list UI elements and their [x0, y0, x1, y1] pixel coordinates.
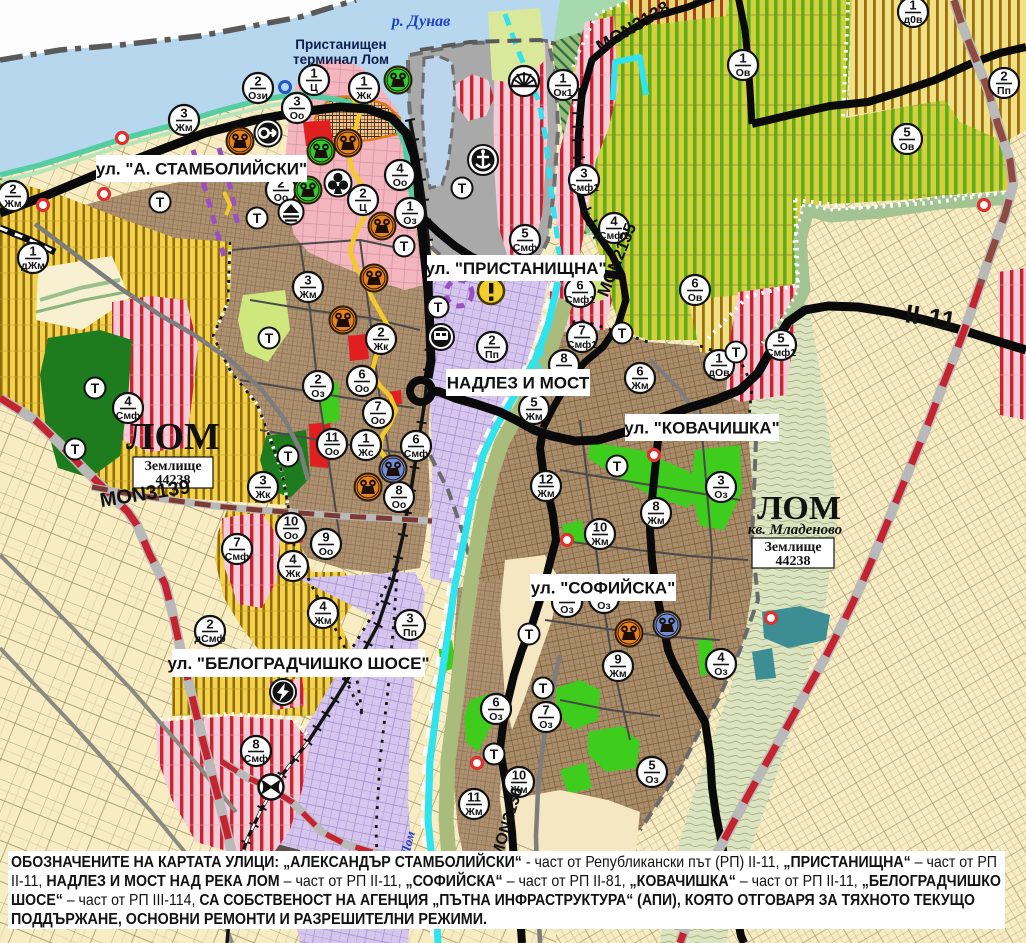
svg-text:Т: Т: [434, 299, 443, 315]
svg-text:Жм: Жм: [630, 380, 648, 392]
svg-text:Жм: Жм: [3, 198, 21, 210]
svg-text:2: 2: [1000, 69, 1007, 84]
svg-text:5: 5: [521, 226, 528, 241]
svg-text:р. Дунав: р. Дунав: [390, 13, 450, 30]
svg-text:1: 1: [362, 431, 369, 446]
svg-text:Смф1: Смф1: [766, 347, 796, 359]
svg-text:терминал Лом: терминал Лом: [293, 52, 389, 67]
svg-text:1: 1: [739, 51, 746, 66]
svg-text:Жм: Жм: [590, 536, 608, 548]
svg-text:Смф: Смф: [404, 448, 428, 460]
svg-text:Жк: Жк: [356, 90, 372, 102]
svg-text:10: 10: [512, 768, 526, 783]
svg-text:дОв: дОв: [708, 367, 730, 379]
svg-text:7: 7: [542, 703, 549, 718]
svg-text:3: 3: [180, 106, 187, 121]
svg-text:6: 6: [358, 367, 365, 382]
svg-text:6: 6: [492, 695, 499, 710]
svg-text:Оз: Оз: [560, 604, 573, 616]
svg-text:9: 9: [322, 530, 329, 545]
svg-text:1: 1: [29, 244, 36, 259]
svg-text:4: 4: [124, 394, 132, 409]
svg-text:ул. "КОВАЧИШКА": ул. "КОВАЧИШКА": [624, 419, 780, 438]
svg-text:5: 5: [648, 758, 655, 773]
svg-text:Т: Т: [156, 194, 165, 210]
svg-text:44238: 44238: [776, 554, 811, 569]
svg-text:Жм: Жм: [608, 668, 626, 680]
svg-text:Т: Т: [91, 380, 100, 396]
svg-text:Жк: Жк: [373, 341, 389, 353]
svg-text:11: 11: [467, 790, 481, 805]
svg-text:4: 4: [289, 552, 297, 567]
svg-text:Смф: Смф: [513, 242, 537, 254]
svg-text:2: 2: [206, 617, 213, 632]
svg-text:д0в: д0в: [904, 14, 924, 26]
svg-text:Оо: Оо: [393, 177, 408, 189]
svg-text:Оо: Оо: [371, 415, 386, 427]
svg-text:Т: Т: [284, 448, 293, 464]
svg-text:Ов: Ов: [688, 292, 703, 304]
svg-text:Оз: Оз: [539, 719, 552, 731]
svg-text:Оо: Оо: [392, 499, 407, 511]
svg-text:1: 1: [715, 351, 722, 366]
svg-text:2: 2: [488, 333, 495, 348]
svg-text:Землище: Землище: [144, 459, 201, 474]
svg-text:4: 4: [717, 650, 725, 665]
svg-text:1: 1: [909, 0, 916, 13]
svg-text:кв. Младеново: кв. Младеново: [748, 522, 842, 538]
svg-text:ЛОМ: ЛОМ: [126, 416, 220, 458]
svg-text:Ози: Ози: [248, 90, 268, 102]
svg-text:Т: Т: [525, 626, 534, 642]
svg-text:Оо: Оо: [319, 546, 334, 558]
svg-text:Ов: Ов: [736, 67, 751, 79]
svg-text:2: 2: [377, 325, 384, 340]
svg-text:8: 8: [395, 483, 402, 498]
svg-text:Оз: Оз: [489, 711, 502, 723]
svg-text:Т: Т: [253, 210, 262, 226]
svg-text:Жк: Жк: [285, 568, 301, 580]
svg-text:8: 8: [560, 351, 567, 366]
svg-text:Пп: Пп: [997, 85, 1011, 97]
svg-text:1: 1: [310, 66, 317, 81]
svg-text:Т: Т: [400, 238, 409, 254]
svg-text:3: 3: [717, 473, 724, 488]
svg-text:Смф1: Смф1: [569, 182, 599, 194]
svg-text:Оз: Оз: [714, 489, 727, 501]
svg-text:5: 5: [903, 125, 910, 140]
svg-text:3: 3: [580, 166, 587, 181]
svg-text:7: 7: [233, 535, 240, 550]
svg-text:ул. "БЕЛОГРАДЧИШКО ШОСЕ": ул. "БЕЛОГРАДЧИШКО ШОСЕ": [167, 654, 429, 673]
svg-text:Оз: Оз: [597, 600, 610, 612]
svg-text:6: 6: [691, 276, 698, 291]
svg-text:Т: Т: [71, 441, 80, 457]
svg-text:Ок1: Ок1: [553, 87, 572, 99]
svg-text:Оо: Оо: [325, 446, 340, 458]
svg-text:ОБОЗНАЧЕНИТЕ НА КАРТАТА УЛИЦИ:: ОБОЗНАЧЕНИТЕ НА КАРТАТА УЛИЦИ: „АЛЕКСАНД…: [11, 852, 997, 871]
svg-text:1: 1: [406, 199, 413, 214]
svg-text:4: 4: [396, 161, 404, 176]
svg-text:Жм: Жм: [524, 411, 542, 423]
svg-text:дСмф: дСмф: [194, 633, 225, 645]
svg-text:1: 1: [559, 71, 566, 86]
svg-text:Жм: Жм: [174, 122, 192, 134]
svg-text:12: 12: [539, 472, 553, 487]
svg-text:Жс: Жс: [357, 447, 373, 459]
svg-text:Т: Т: [732, 344, 741, 360]
svg-text:5: 5: [530, 395, 537, 410]
svg-text:6: 6: [636, 364, 643, 379]
svg-text:Т: Т: [265, 330, 274, 346]
svg-text:Пристанищен: Пристанищен: [295, 37, 386, 52]
svg-text:II-11, НАДЛЕЗ И МОСТ НАД РЕКА: II-11, НАДЛЕЗ И МОСТ НАД РЕКА ЛОМ – част…: [11, 871, 1001, 890]
svg-text:3: 3: [259, 473, 266, 488]
svg-text:2: 2: [9, 182, 16, 197]
svg-text:8: 8: [652, 499, 659, 514]
svg-text:Смф: Смф: [244, 753, 268, 765]
svg-text:ул. "ПРИСТАНИЩНА": ул. "ПРИСТАНИЩНА": [425, 259, 606, 278]
svg-text:Т: Т: [458, 180, 467, 196]
svg-text:9: 9: [614, 652, 621, 667]
svg-text:5: 5: [777, 331, 784, 346]
svg-text:Оо: Оо: [284, 530, 299, 542]
svg-text:дЖм: дЖм: [21, 260, 45, 272]
svg-text:Жм: Жм: [313, 615, 331, 627]
svg-text:ШОСЕ“ – част от РП III-114, СА: ШОСЕ“ – част от РП III-114, СА СОБСТВЕНО…: [11, 892, 975, 909]
svg-text:6: 6: [412, 432, 419, 447]
svg-text:Пп: Пп: [485, 349, 499, 361]
svg-text:2: 2: [254, 74, 261, 89]
svg-text:Ов: Ов: [900, 141, 915, 153]
svg-text:Т: Т: [613, 458, 622, 474]
svg-text:ул. "СОФИЙСКА": ул. "СОФИЙСКА": [531, 579, 676, 598]
svg-text:Жм: Жм: [646, 515, 664, 527]
svg-text:Смф: Смф: [225, 551, 249, 563]
svg-text:НАДЛЕЗ И МОСТ: НАДЛЕЗ И МОСТ: [447, 374, 590, 393]
svg-text:Ц: Ц: [310, 82, 318, 94]
svg-text:8: 8: [252, 737, 259, 752]
svg-text:Оз: Оз: [645, 774, 658, 786]
svg-text:Т: Т: [490, 746, 499, 762]
svg-text:Оо: Оо: [355, 383, 370, 395]
svg-text:Смф1: Смф1: [567, 339, 597, 351]
svg-text:Смф1: Смф1: [565, 294, 595, 306]
svg-text:1: 1: [360, 74, 367, 89]
svg-text:Оз: Оз: [714, 666, 727, 678]
svg-text:Жк: Жк: [255, 489, 271, 501]
svg-text:Жм: Жм: [464, 806, 482, 818]
svg-text:2: 2: [314, 372, 321, 387]
svg-text:3: 3: [293, 94, 300, 109]
svg-text:Оо: Оо: [290, 110, 305, 122]
svg-text:Ц: Ц: [359, 202, 367, 214]
svg-text:10: 10: [284, 514, 298, 529]
svg-text:4: 4: [319, 599, 327, 614]
svg-text:Т: Т: [539, 680, 548, 696]
svg-text:Землище: Землище: [764, 540, 821, 555]
svg-text:3: 3: [406, 611, 413, 626]
svg-text:ул. "А. СТАМБОЛИЙСКИ": ул. "А. СТАМБОЛИЙСКИ": [96, 160, 307, 179]
svg-text:Оз: Оз: [311, 388, 324, 400]
svg-text:10: 10: [593, 520, 607, 535]
svg-text:Пп: Пп: [403, 627, 417, 639]
svg-text:Жм: Жм: [298, 289, 316, 301]
svg-text:Жм: Жм: [536, 488, 554, 500]
svg-text:Т: Т: [618, 325, 627, 341]
svg-text:7: 7: [374, 399, 381, 414]
svg-text:Оз: Оз: [403, 215, 416, 227]
svg-text:3: 3: [304, 273, 311, 288]
svg-text:4: 4: [610, 214, 618, 229]
svg-text:2: 2: [359, 186, 366, 201]
svg-text:7: 7: [578, 323, 585, 338]
svg-text:11: 11: [325, 430, 339, 445]
svg-text:ПОДДЪРЖАНЕ, ОСНОВНИ РЕМОНТИ И: ПОДДЪРЖАНЕ, ОСНОВНИ РЕМОНТИ И РАЗРЕШИТЕЛ…: [11, 911, 487, 928]
